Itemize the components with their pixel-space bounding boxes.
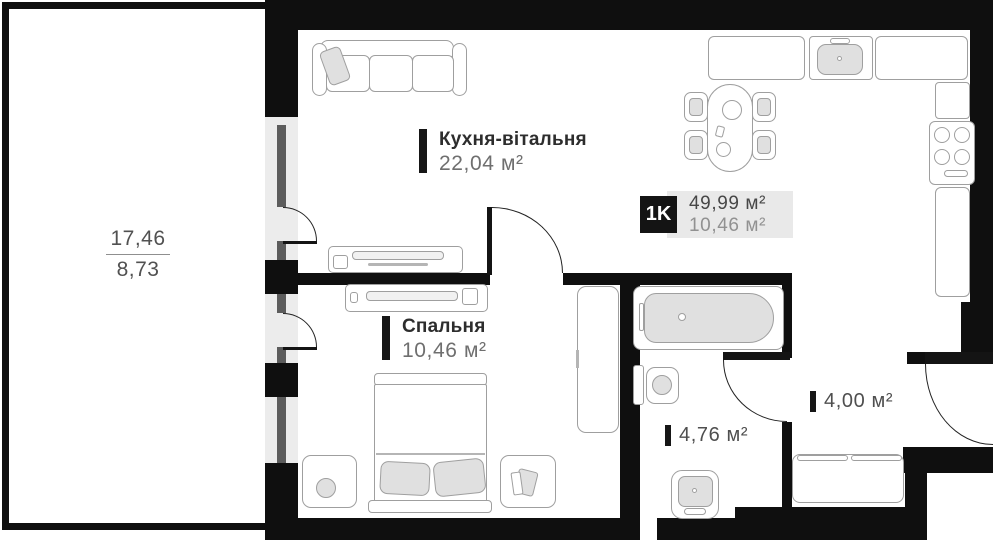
wall-top-main xyxy=(265,0,993,30)
wall-kitchen-bedroom-right xyxy=(563,273,792,285)
kitchen-sink-drain xyxy=(837,56,842,61)
shoe-cabinet-lid xyxy=(851,455,902,461)
label-bar xyxy=(810,391,816,412)
label-bar xyxy=(419,129,427,173)
balcony-wall-bottom xyxy=(2,523,265,530)
kitchen-counter xyxy=(935,82,970,119)
wall-glaze-pier-2 xyxy=(265,363,298,397)
wall-entry-step-2 xyxy=(907,352,927,364)
toilet-tank xyxy=(633,365,644,405)
balcony-area-label: 17,46 8,73 xyxy=(96,227,180,282)
stove-panel xyxy=(944,170,968,177)
bathroom-door-swing xyxy=(723,360,787,422)
tv-bedroom xyxy=(366,291,458,301)
balcony-wall-top xyxy=(2,2,265,9)
bed-blanket-line xyxy=(376,453,485,455)
table-decor xyxy=(716,142,731,157)
balcony-glass-pane xyxy=(277,125,286,207)
sofa-cushion xyxy=(412,55,454,92)
balcony-glass-pane xyxy=(277,294,286,313)
dining-chair-pad xyxy=(757,136,771,154)
stove-burner xyxy=(934,127,950,143)
wall-bottom-step xyxy=(735,507,927,518)
balcony-door-kitchen-swing xyxy=(283,207,317,241)
tv-kitchen-base xyxy=(368,263,428,266)
room-name: Спальня xyxy=(402,316,487,338)
room-area: 4,76 м² xyxy=(679,424,748,447)
kitchen-counter xyxy=(708,36,805,80)
unit-type-badge: 1K xyxy=(640,196,677,233)
bathroom-sink-drain xyxy=(692,488,697,493)
wall-entry-step-1 xyxy=(961,302,993,352)
room-area: 4,00 м² xyxy=(824,390,893,413)
wall-bathroom-right-lower xyxy=(782,422,792,518)
bathroom-sink-tap xyxy=(684,508,706,515)
wardrobe xyxy=(577,286,619,433)
stove-burner xyxy=(954,149,970,165)
room-area: 22,04 м² xyxy=(439,152,587,176)
bed-pillow xyxy=(379,461,431,497)
balcony-glass-pane xyxy=(277,397,286,463)
wall-entry-niche-left xyxy=(905,447,927,507)
dining-table xyxy=(707,84,753,172)
wardrobe-handle xyxy=(576,350,579,368)
sideboard-box xyxy=(333,255,348,269)
bathroom-door-leaf xyxy=(723,352,790,360)
hallway-label: 4,00 м² xyxy=(810,390,893,413)
unit-info-badge: 1K 49,99 м² 10,46 м² xyxy=(667,191,793,238)
shoe-cabinet-lid xyxy=(797,455,848,461)
stove-burner xyxy=(954,127,970,143)
nightstand-lamp xyxy=(316,478,336,498)
bedroom-label: Спальня 10,46 м² xyxy=(382,316,487,363)
sofa-cushion xyxy=(369,55,413,92)
stove-burner xyxy=(934,149,950,165)
unit-total-area: 49,99 м² xyxy=(689,193,766,215)
dresser-box xyxy=(462,288,478,305)
label-bar xyxy=(665,425,671,446)
kitchen-counter xyxy=(935,187,970,297)
tv-kitchen xyxy=(352,251,444,260)
balcony-door-kitchen-leaf xyxy=(283,241,317,244)
sofa-armrest-right xyxy=(452,43,467,96)
bathtub-drain xyxy=(678,313,686,321)
bathtub-faucet xyxy=(639,303,644,331)
label-bar xyxy=(382,316,390,360)
bathroom-label: 4,76 м² xyxy=(665,424,748,447)
balcony-area-full: 17,46 xyxy=(106,227,169,255)
unit-living-area: 10,46 м² xyxy=(689,215,766,236)
balcony-door-bedroom-swing xyxy=(283,313,317,347)
room-name: Кухня-вітальня xyxy=(439,129,587,151)
dining-chair-pad xyxy=(689,98,703,116)
bed-pillow xyxy=(432,457,486,497)
floor-plan: Кухня-вітальня 22,04 м² Спальня 10,46 м²… xyxy=(0,0,1000,540)
toilet-seat xyxy=(652,375,672,395)
bedroom-door-swing xyxy=(492,207,563,273)
bathtub-basin xyxy=(644,293,774,343)
wall-bottom-bath-hall xyxy=(657,518,927,540)
balcony-area-reduced: 8,73 xyxy=(96,258,180,282)
kitchen-sink-faucet xyxy=(830,38,850,44)
wall-left-column xyxy=(265,0,298,117)
dresser-knob xyxy=(350,292,358,303)
kitchen-counter xyxy=(875,36,968,80)
wall-glaze-pier-1 xyxy=(265,260,298,294)
bed-headboard xyxy=(368,500,492,513)
balcony-door-bedroom-leaf xyxy=(283,347,317,350)
shoe-cabinet xyxy=(792,454,904,503)
wall-bottom-bedroom xyxy=(265,518,620,540)
dining-chair-pad xyxy=(689,136,703,154)
dining-chair-pad xyxy=(757,98,771,116)
table-plate xyxy=(722,100,742,120)
entrance-door-leaf xyxy=(925,352,993,364)
room-area: 10,46 м² xyxy=(402,339,487,363)
balcony-wall-left xyxy=(2,2,9,530)
kitchen-living-label: Кухня-вітальня 22,04 м² xyxy=(419,129,587,176)
entrance-door-swing xyxy=(925,364,993,445)
